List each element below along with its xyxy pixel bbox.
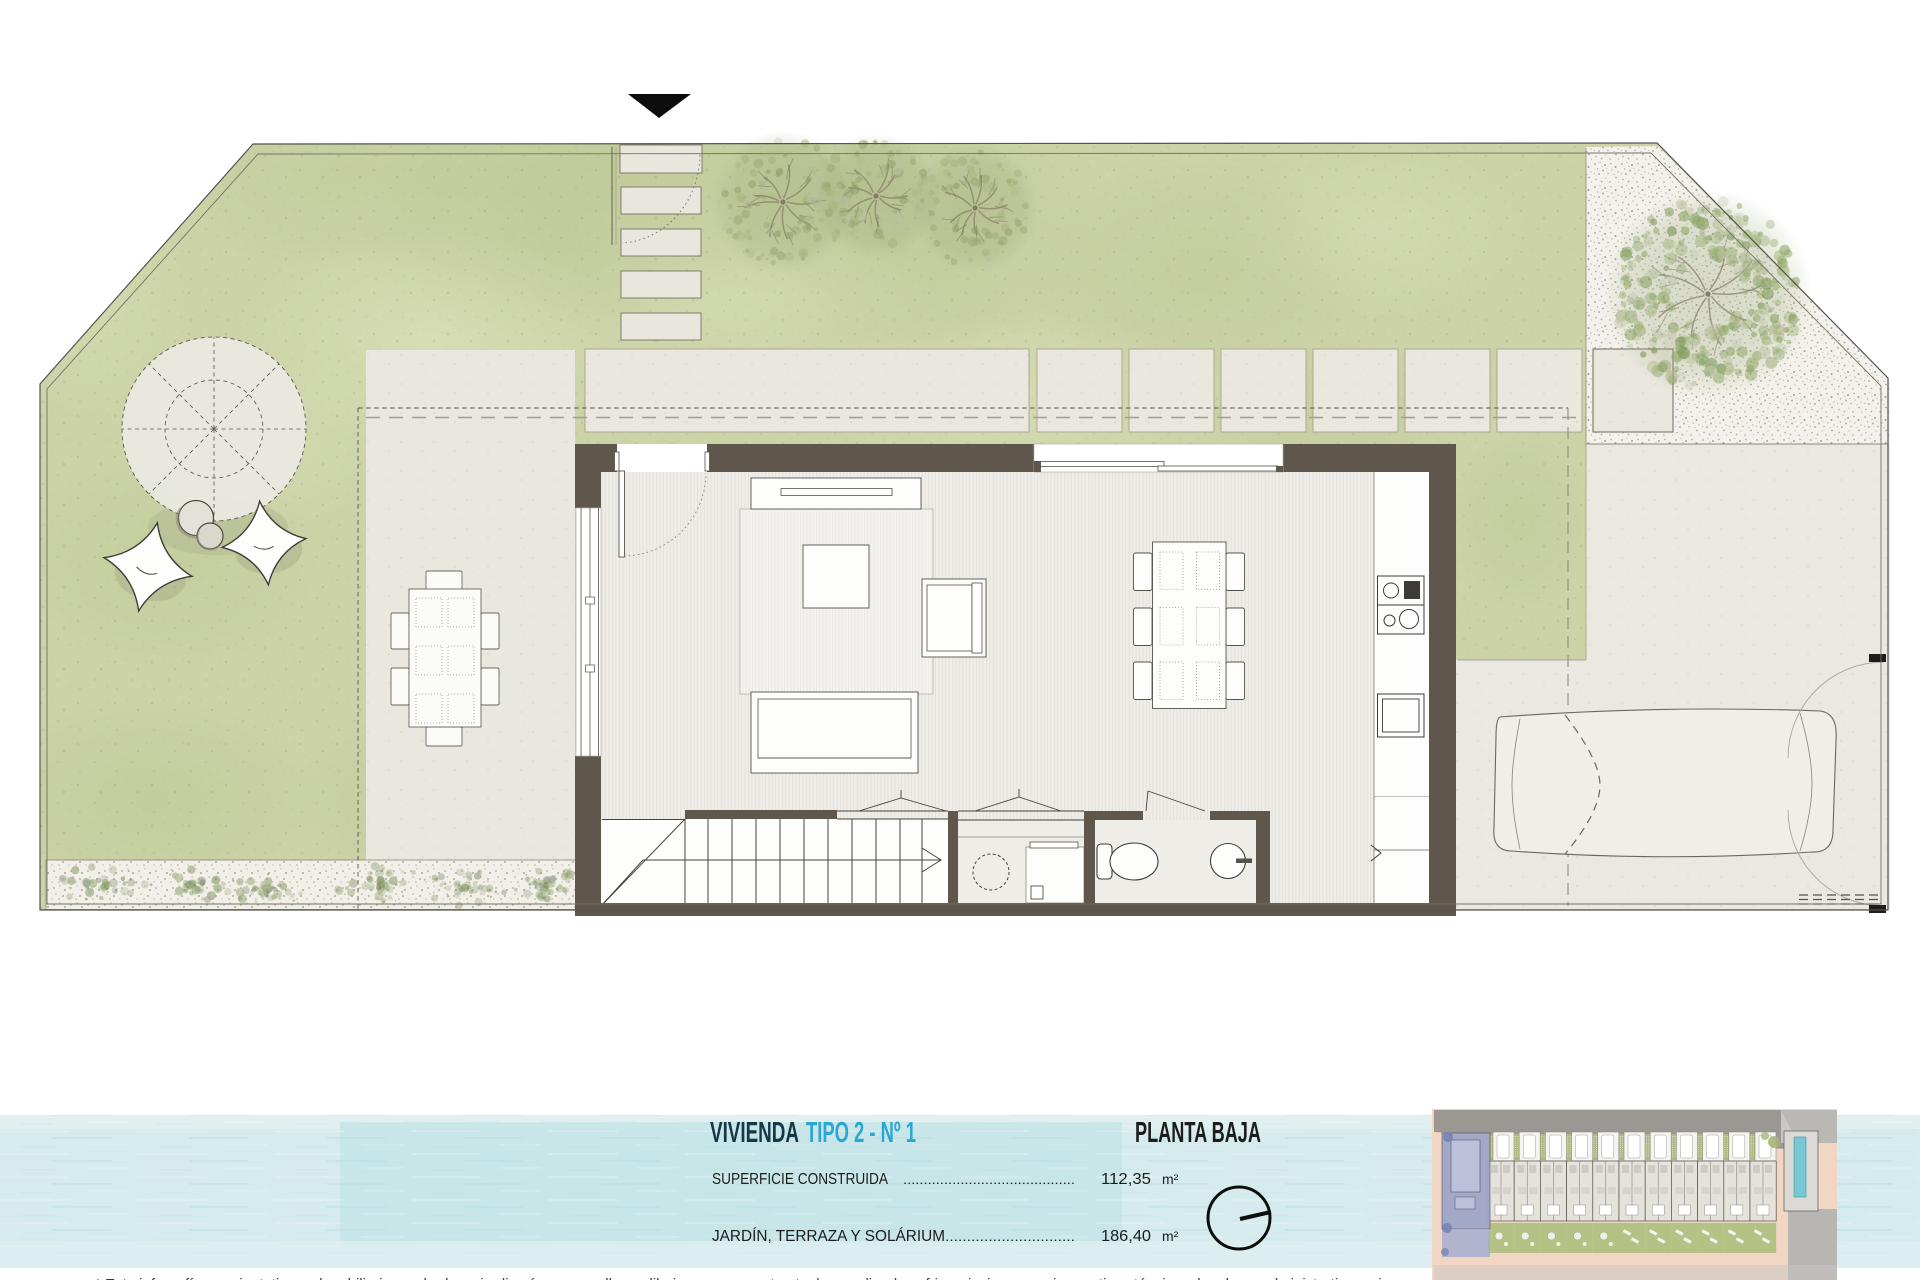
svg-text:..............................: ........................................… bbox=[903, 1172, 1075, 1187]
svg-text:PLANTA BAJA: PLANTA BAJA bbox=[1135, 1117, 1261, 1149]
svg-text:VIVIENDA: VIVIENDA bbox=[710, 1117, 799, 1149]
svg-text:TIPO 2 - Nº 1: TIPO 2 - Nº 1 bbox=[806, 1117, 916, 1149]
svg-text:..............................: .............................. bbox=[945, 1229, 1075, 1244]
svg-text:112,35: 112,35 bbox=[1101, 1171, 1151, 1188]
svg-text:SUPERFICIE CONSTRUIDA: SUPERFICIE CONSTRUIDA bbox=[712, 1171, 889, 1188]
svg-text:186,40: 186,40 bbox=[1101, 1228, 1151, 1245]
svg-text:JARDÍN, TERRAZA Y SOLÁRIUM: JARDÍN, TERRAZA Y SOLÁRIUM bbox=[712, 1228, 945, 1245]
svg-text:m²: m² bbox=[1162, 1171, 1179, 1187]
svg-text:m²: m² bbox=[1162, 1228, 1179, 1244]
